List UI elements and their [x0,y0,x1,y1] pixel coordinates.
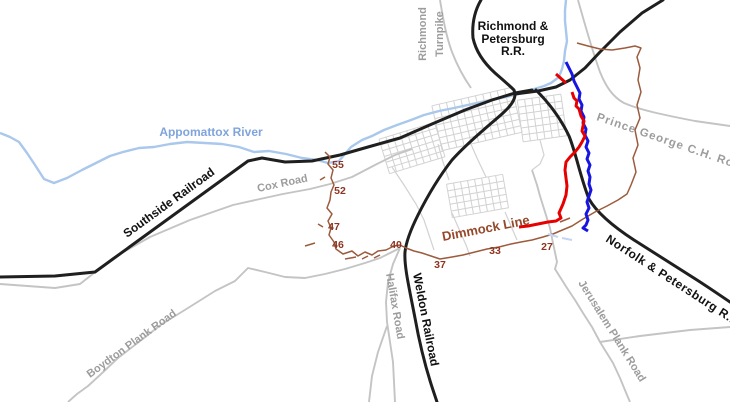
confederate-line [519,74,585,227]
norfolk-petersburg-rr-label: Norfolk & Petersburg R.R. [603,232,730,331]
boydton-plank-road-line [68,248,400,402]
halifax-road-branch [369,326,387,402]
battery-number-37: 37 [434,259,446,271]
battery-number-33: 33 [489,245,501,257]
petersburg-map: Appomattox River Richmond & Petersburg R… [0,0,730,402]
battery-number-40: 40 [390,239,402,251]
battery-number-47: 47 [328,221,340,233]
richmond-petersburg-rr-label-line3: R.R. [501,44,525,58]
boydton-plank-road-label: Boydton Plank Road [85,307,179,380]
richmond-petersburg-rr-label-line1: Richmond & [478,19,549,33]
richmond-turnpike-label-line2: Turnpike [434,11,446,57]
battery-number-27: 27 [541,241,553,253]
battery-number-52: 52 [334,185,346,197]
richmond-turnpike-label-line1: Richmond [417,7,429,61]
battery-number-55: 55 [332,159,344,171]
prince-george-ch-road-line [578,0,730,126]
prince-george-ch-road-label: Prince George C.H. Road [595,111,730,174]
appomattox-river-label: Appomattox River [159,125,263,139]
battery-number-46: 46 [332,239,344,251]
jerusalem-plank-road-label: Jerusalem Plank Road [575,278,647,384]
